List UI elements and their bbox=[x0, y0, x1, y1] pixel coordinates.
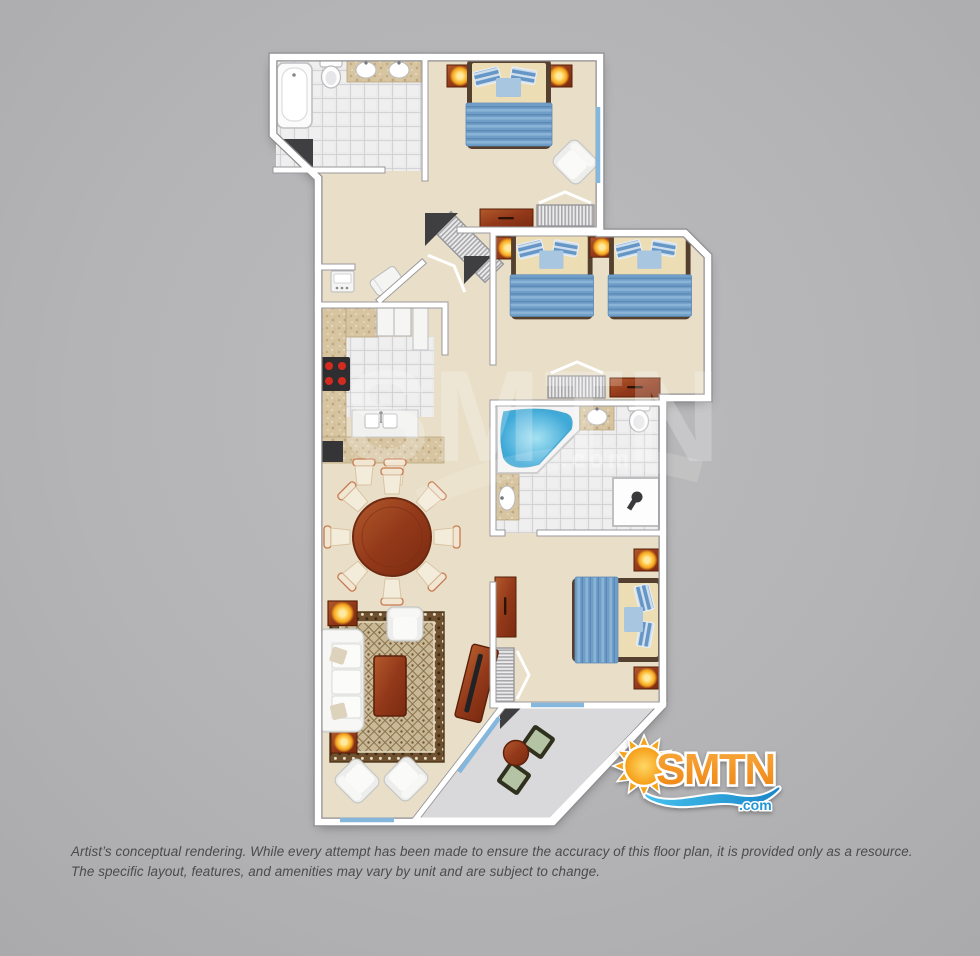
twin-bed bbox=[608, 232, 691, 319]
sofa bbox=[317, 629, 364, 732]
king-bed bbox=[572, 577, 662, 663]
disclaimer-line-2: The specific layout, features, and ameni… bbox=[71, 862, 941, 882]
watermark-suffix: .com bbox=[561, 446, 633, 473]
nightstand-lamp bbox=[634, 667, 660, 689]
patio-table bbox=[504, 741, 529, 766]
dining-chair bbox=[434, 526, 460, 548]
king-bed bbox=[466, 59, 552, 149]
refrigerator bbox=[377, 306, 411, 336]
side-table-lamp bbox=[328, 601, 357, 626]
dining-table bbox=[353, 498, 431, 576]
armchair bbox=[387, 607, 423, 641]
watermark-text: SMTN bbox=[343, 343, 723, 489]
tall-dresser bbox=[495, 577, 516, 637]
bathtub bbox=[277, 63, 312, 128]
side-table-lamp bbox=[331, 731, 357, 753]
utility-appliance bbox=[331, 271, 354, 292]
logo-text: SMTN bbox=[656, 745, 775, 794]
floor-plan: SMTN .com SMTN .com bbox=[0, 0, 980, 956]
dining-chair bbox=[324, 526, 350, 548]
watermark: SMTN .com bbox=[343, 343, 723, 500]
nightstand-lamp bbox=[634, 549, 660, 571]
toilet bbox=[320, 58, 342, 88]
double-vanity bbox=[347, 59, 421, 82]
floor-plan-unit: SMTN .com bbox=[273, 57, 723, 822]
smtn-logo: SMTN .com bbox=[613, 735, 780, 813]
logo-suffix: .com bbox=[739, 797, 772, 813]
dresser bbox=[480, 209, 533, 228]
twin-bed bbox=[510, 232, 593, 319]
disclaimer: Artist’s conceptual rendering. While eve… bbox=[71, 842, 941, 882]
coffee-table bbox=[374, 656, 406, 716]
dining-chair bbox=[381, 579, 403, 605]
page-background: { "watermark": { "text": "SMTN", "suffix… bbox=[0, 0, 980, 956]
closet-louver-doors bbox=[537, 205, 594, 226]
disclaimer-line-1: Artist’s conceptual rendering. While eve… bbox=[71, 842, 941, 862]
